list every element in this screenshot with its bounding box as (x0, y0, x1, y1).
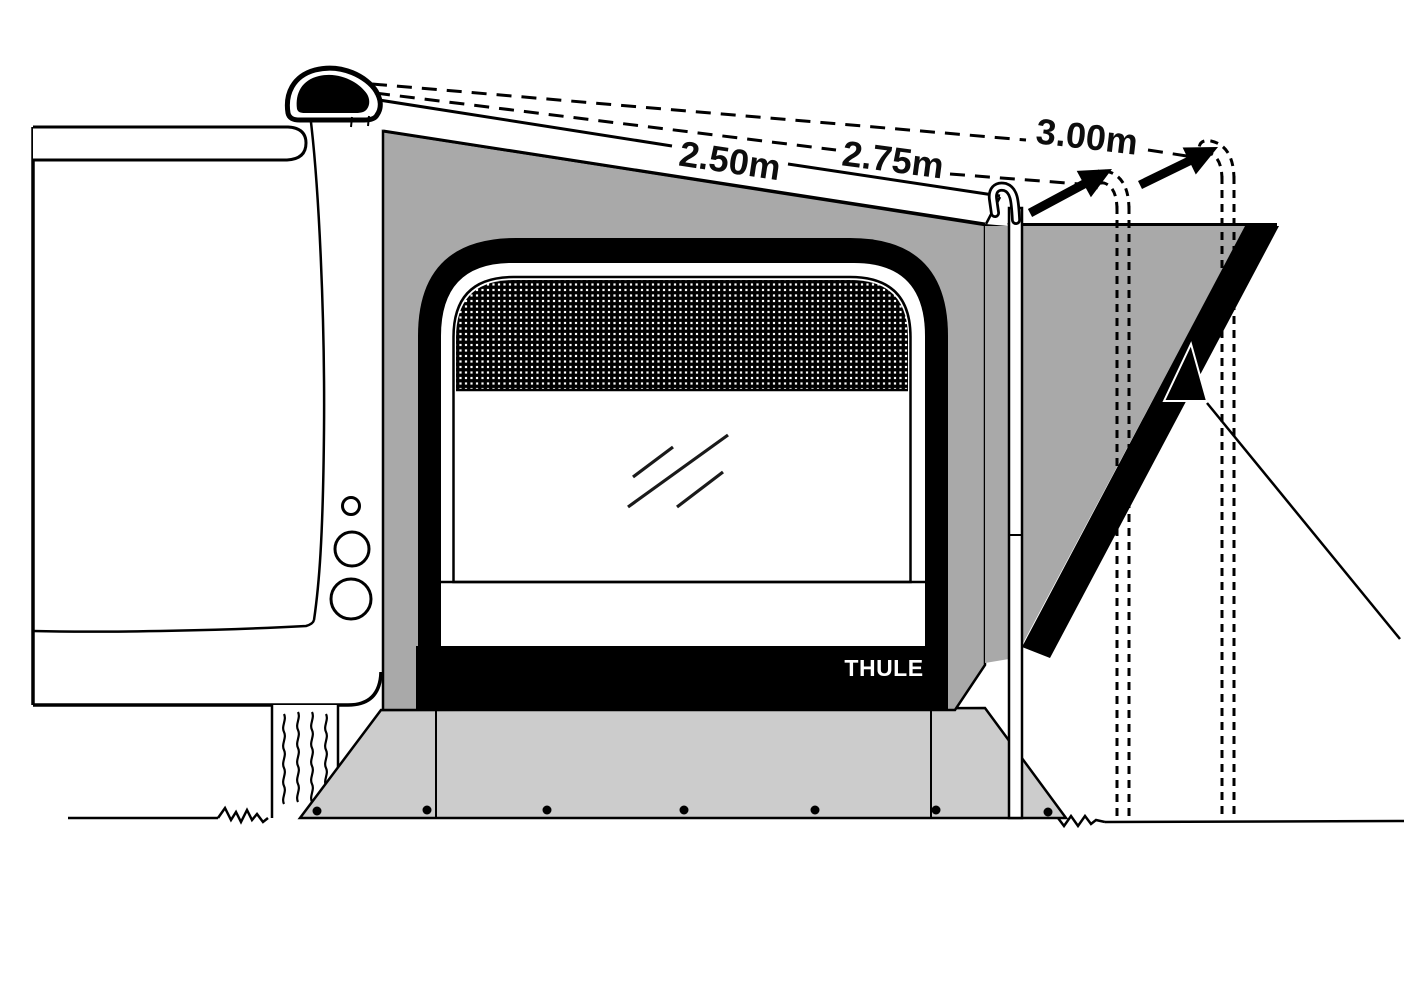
vehicle-light-middle (335, 532, 369, 566)
support-pole-shaft (1009, 208, 1022, 818)
vehicle-roof-gutter (33, 127, 306, 160)
diagram-canvas: THULE (0, 0, 1414, 1000)
vehicle-body (33, 127, 380, 705)
awning-diagram: THULE (0, 0, 1414, 1000)
awning-ground-skirt (300, 708, 1066, 818)
vehicle (33, 114, 381, 705)
vehicle-light-large (331, 579, 371, 619)
thule-logo-text: THULE (844, 655, 923, 681)
skirt-panel (300, 708, 1066, 818)
window-mesh-panel (456, 280, 908, 390)
vehicle-light-small (343, 498, 360, 515)
awning-window: THULE (416, 238, 948, 710)
ground-line-right (1105, 821, 1404, 822)
